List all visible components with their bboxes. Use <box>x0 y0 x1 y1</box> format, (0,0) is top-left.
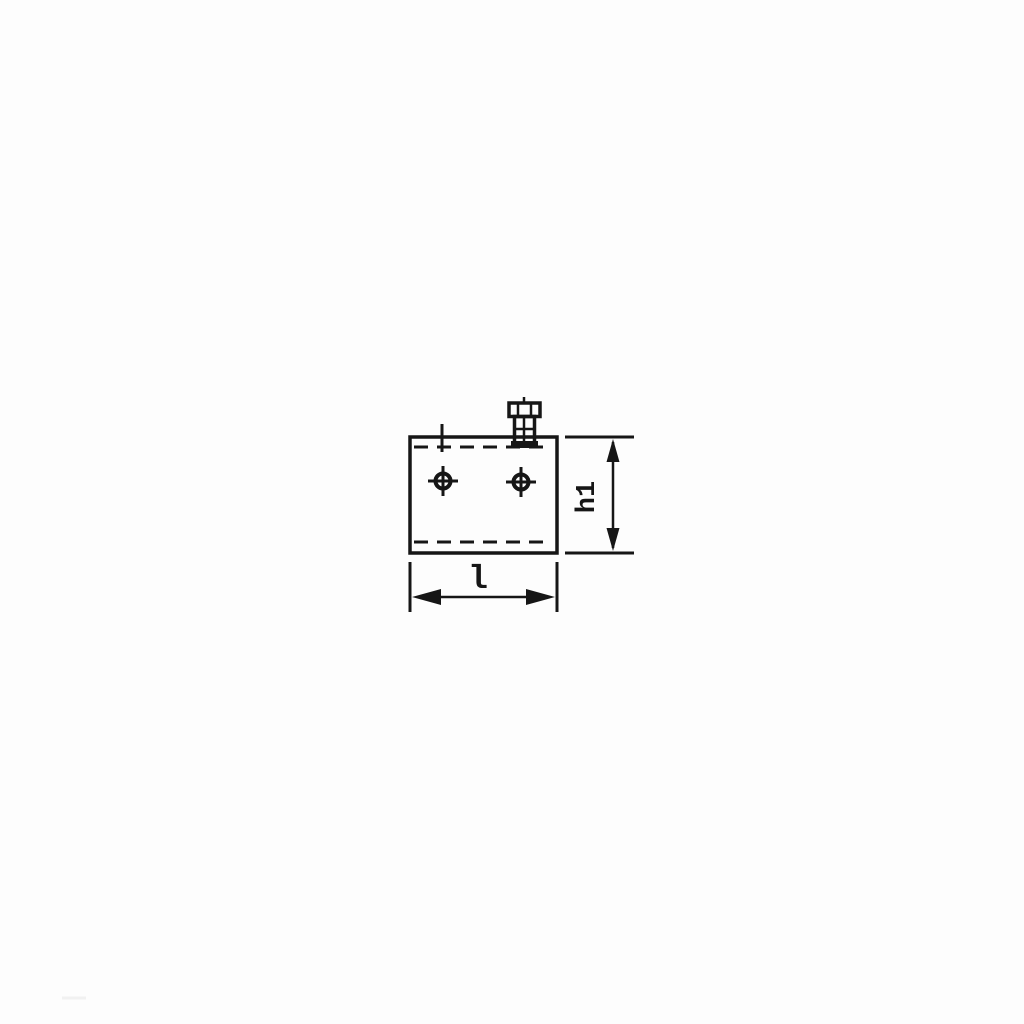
bracket-plate-outline <box>410 437 557 553</box>
dimension-label-h1: h1 <box>573 481 603 513</box>
dimension-label-l: l <box>468 561 488 598</box>
dimension-l: l <box>410 561 557 612</box>
mounting-hole-left <box>428 466 458 496</box>
mounting-hole-right <box>506 467 536 497</box>
technical-drawing: h1 l <box>0 0 1024 1024</box>
dimension-h1: h1 <box>565 437 634 553</box>
scanned-page: h1 l <box>0 0 1024 1024</box>
bolt <box>509 397 540 448</box>
arrowhead-down <box>607 528 620 551</box>
bolt-flange <box>511 441 538 448</box>
arrowhead-left <box>412 589 441 605</box>
arrowhead-right <box>526 589 555 605</box>
arrowhead-up <box>607 439 620 462</box>
bolt-hex-head <box>509 403 540 417</box>
